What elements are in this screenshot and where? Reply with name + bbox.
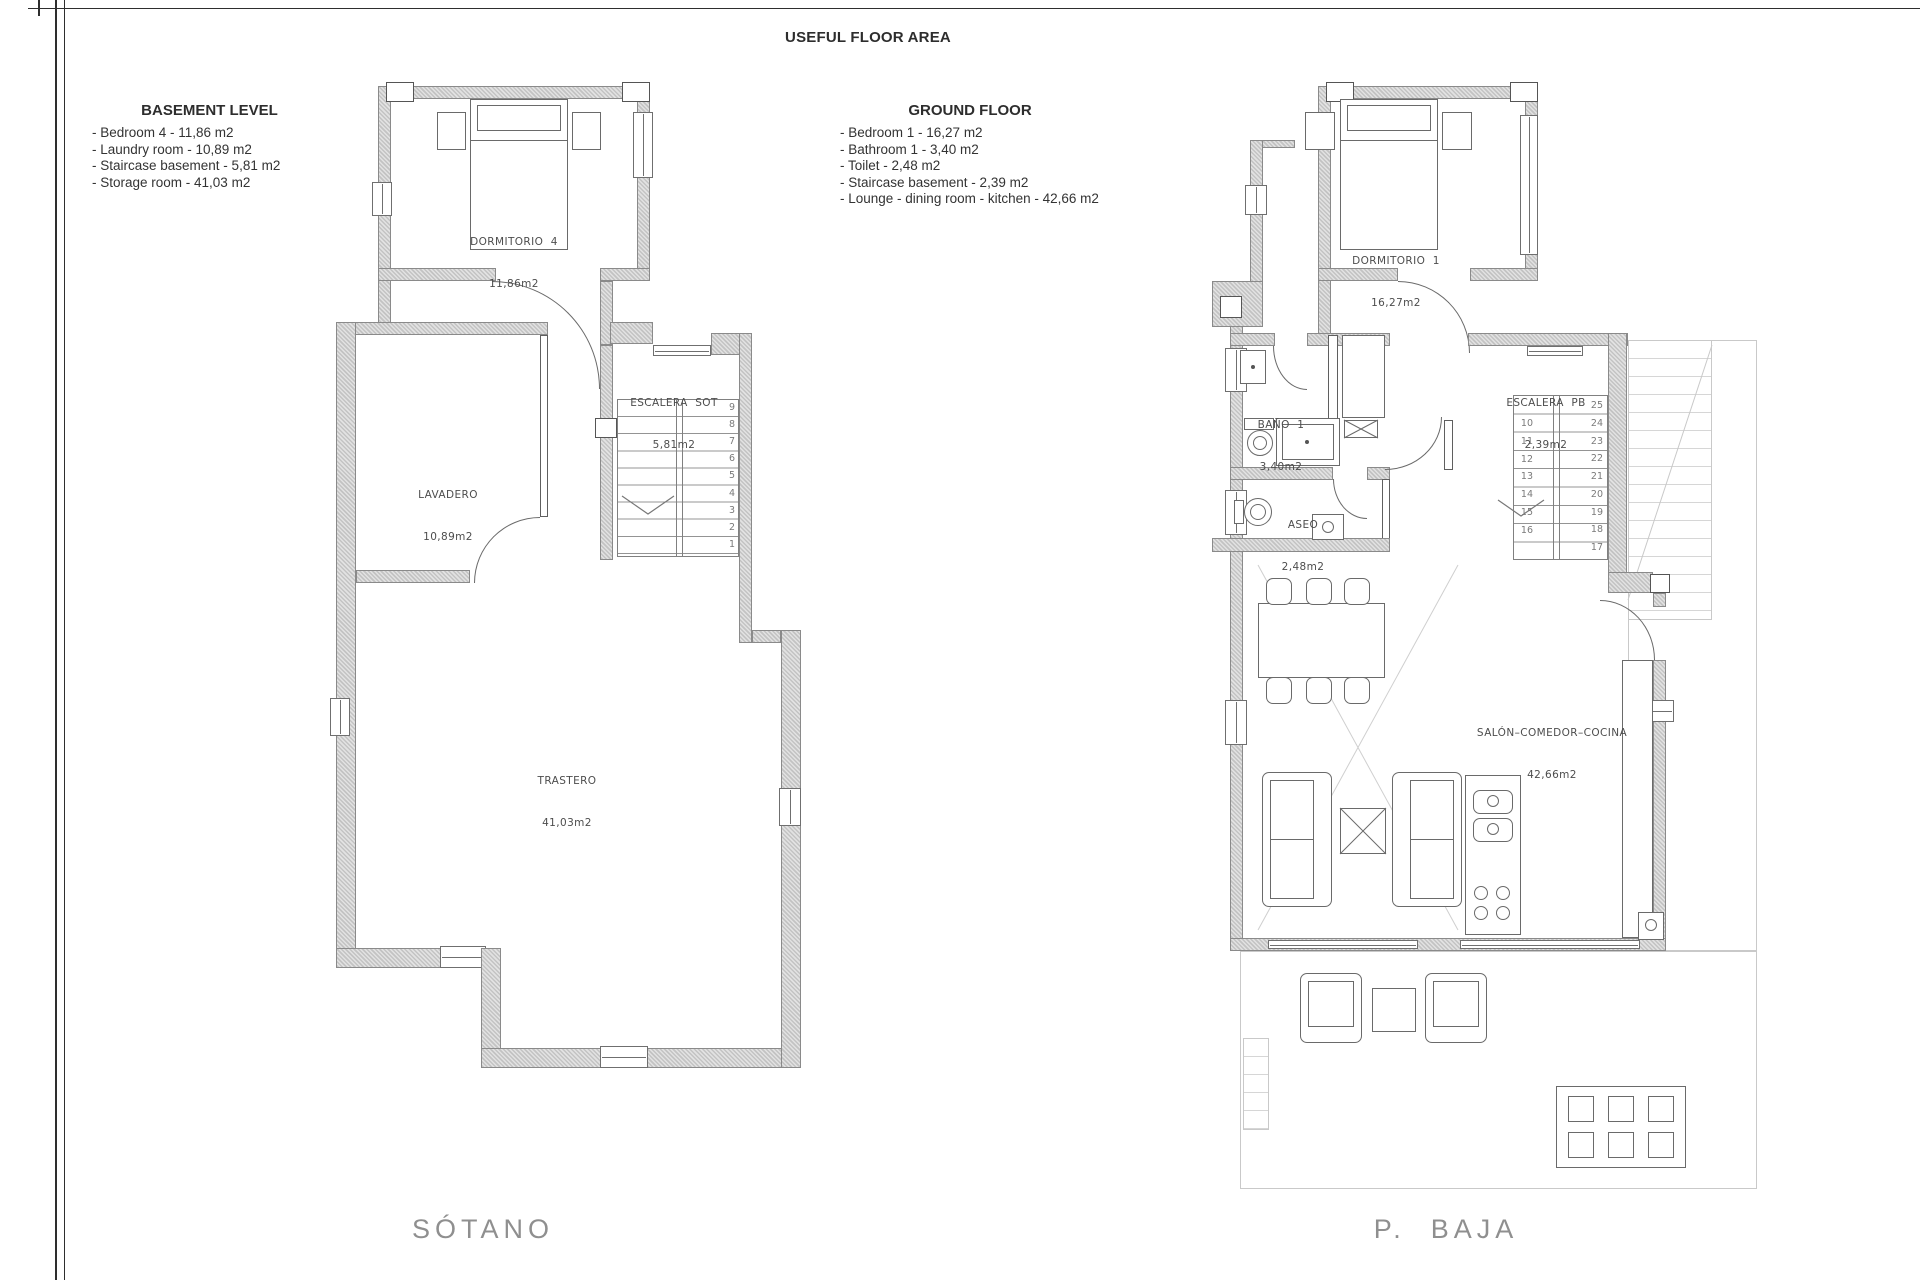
pilaster [386, 82, 414, 102]
pilaster [1510, 82, 1538, 102]
stair-step-number: 19 [1591, 507, 1603, 518]
door-arc [1333, 479, 1367, 519]
wall [600, 268, 650, 281]
window [372, 182, 392, 216]
wall [1653, 593, 1666, 607]
room-label-escalera-sot: ESCALERA SOT 5,81m2 [630, 368, 718, 480]
sink-tap [1251, 365, 1255, 369]
room-name: BAÑO 1 [1258, 418, 1305, 432]
legend-item: - Toilet - 2,48 m2 [840, 158, 1100, 175]
chair [1344, 677, 1370, 704]
legend-item: - Bedroom 4 - 11,86 m2 [92, 125, 327, 142]
room-name: ESCALERA SOT [630, 396, 718, 410]
nightstand [572, 112, 601, 150]
legend-item: - Staircase basement - 5,81 m2 [92, 158, 327, 175]
room-area: 2,39m2 [1506, 438, 1585, 452]
terrace-seat [1608, 1132, 1634, 1158]
wall [378, 86, 650, 99]
legend-item: - Lounge - dining room - kitchen - 42,66… [840, 191, 1100, 208]
window [633, 112, 653, 178]
legend-item: - Bathroom 1 - 3,40 m2 [840, 142, 1100, 159]
wall [739, 333, 752, 643]
room-name: ASEO [1282, 518, 1325, 532]
cabinet-cross [1344, 420, 1378, 438]
pilaster [1650, 574, 1670, 593]
door-arc [1385, 417, 1442, 470]
room-name: TRASTERO [538, 774, 597, 788]
plan-caption-pbaja: P. BAJA [1374, 1214, 1519, 1245]
stair-step-number: 6 [729, 453, 735, 464]
pilaster [622, 82, 650, 102]
stair-step-number: 2 [729, 522, 735, 533]
bed-pillow [477, 105, 561, 131]
legend-ground-heading: GROUND FLOOR [840, 102, 1100, 119]
window [330, 698, 350, 736]
wall [1608, 333, 1627, 593]
stair-step-number: 16 [1521, 525, 1533, 536]
room-label-escalera-pb: ESCALERA PB 2,39m2 [1506, 368, 1585, 480]
window [1225, 700, 1247, 745]
stair-step-number: 4 [729, 488, 735, 499]
room-name: SALÓN–COMEDOR–COCINA [1477, 726, 1627, 740]
wall [1230, 333, 1275, 346]
stair-step-number: 20 [1591, 489, 1603, 500]
room-label-trastero: TRASTERO 41,03m2 [538, 746, 597, 858]
toilet-tank [1234, 500, 1244, 524]
legend-item: - Bedroom 1 - 16,27 m2 [840, 125, 1100, 142]
stair-step-number: 9 [729, 402, 735, 413]
partition-wall [540, 335, 548, 517]
door-arc [474, 517, 540, 583]
room-name: DORMITORIO 4 [470, 235, 558, 249]
cooktop-burner [1496, 886, 1510, 900]
bed-fold-line [1340, 140, 1438, 141]
chair [1266, 677, 1292, 704]
wall [1608, 572, 1653, 593]
kitchen-sink-bowl [1645, 919, 1657, 931]
stair-step-number: 17 [1591, 542, 1603, 553]
legend-item: - Storage room - 41,03 m2 [92, 175, 327, 192]
stair-step-number: 23 [1591, 436, 1603, 447]
room-area: 16,27m2 [1352, 296, 1440, 310]
chair [1306, 677, 1332, 704]
legend-basement-heading: BASEMENT LEVEL [92, 102, 327, 119]
wall [781, 630, 801, 1068]
wall [1470, 268, 1538, 281]
room-label-dormitorio4: DORMITORIO 4 11,86m2 [470, 207, 558, 319]
window [600, 1046, 648, 1068]
room-label-bano: BAÑO 1 3,40m2 [1258, 390, 1305, 502]
terrace-armchair-seat [1433, 981, 1479, 1027]
drawing-sheet: USEFUL FLOOR AREA BASEMENT LEVEL - Bedro… [0, 0, 1920, 1280]
page-title: USEFUL FLOOR AREA [785, 29, 951, 46]
stair-step-number: 8 [729, 419, 735, 430]
window [1245, 185, 1267, 215]
stair-step-number: 22 [1591, 453, 1603, 464]
cooktop-burner [1474, 886, 1488, 900]
sliding-window [1268, 940, 1418, 949]
room-area: 11,86m2 [470, 277, 558, 291]
room-area: 3,40m2 [1258, 460, 1305, 474]
pilaster [595, 418, 617, 438]
stair-direction-arrow [620, 494, 676, 518]
sofa-cushion-line [1410, 839, 1454, 840]
sheet-corner-tick [38, 0, 40, 16]
room-label-salon: SALÓN–COMEDOR–COCINA 42,66m2 [1477, 698, 1627, 810]
legend-item: - Staircase basement - 2,39 m2 [840, 175, 1100, 192]
nightstand [1442, 112, 1472, 150]
stair-numbers: 252423222120191817 [1586, 395, 1604, 560]
terrace-seat [1608, 1096, 1634, 1122]
wardrobe [1342, 335, 1385, 418]
window [440, 946, 486, 968]
stair-step-number: 21 [1591, 471, 1603, 482]
door-arc [1273, 346, 1307, 390]
stair-step-number: 3 [729, 505, 735, 516]
terrace-seat [1568, 1132, 1594, 1158]
room-label-dormitorio1: DORMITORIO 1 16,27m2 [1352, 226, 1440, 338]
stair-step-number: 18 [1591, 524, 1603, 535]
room-area: 10,89m2 [418, 530, 478, 544]
toilet-bowl-inner [1250, 504, 1266, 520]
wall [752, 630, 781, 643]
shower-drain [1305, 440, 1309, 444]
room-name: LAVADERO [418, 488, 478, 502]
legend-basement: BASEMENT LEVEL - Bedroom 4 - 11,86 m2 - … [92, 102, 327, 191]
wall [1468, 333, 1628, 346]
terrace-table [1372, 988, 1416, 1032]
terrace-steps [1243, 1038, 1269, 1130]
room-name: DORMITORIO 1 [1352, 254, 1440, 268]
partition-wall [1328, 335, 1338, 420]
legend-ground: GROUND FLOOR - Bedroom 1 - 16,27 m2 - Ba… [840, 102, 1100, 208]
window [1527, 346, 1583, 356]
stair-step-number: 5 [729, 470, 735, 481]
room-area: 41,03m2 [538, 816, 597, 830]
legend-item: - Laundry room - 10,89 m2 [92, 142, 327, 159]
stair-step-number: 1 [729, 539, 735, 550]
room-name: ESCALERA PB [1506, 396, 1585, 410]
room-area: 5,81m2 [630, 438, 718, 452]
nightstand [437, 112, 466, 150]
sheet-border-left [55, 0, 65, 1280]
stair-numbers: 987654321 [718, 399, 736, 559]
dining-table [1258, 603, 1385, 678]
wall [1250, 140, 1263, 294]
partition-wall [1382, 479, 1390, 539]
partition-wall [1444, 420, 1453, 470]
terrace-seat [1568, 1096, 1594, 1122]
niche [1220, 296, 1242, 318]
cooktop-burner [1474, 906, 1488, 920]
room-label-aseo: ASEO 2,48m2 [1282, 490, 1325, 602]
stair-step-number: 24 [1591, 418, 1603, 429]
stair-direction-arrow [1496, 498, 1546, 520]
bed-pillow [1347, 105, 1431, 131]
room-label-lavadero: LAVADERO 10,89m2 [418, 460, 478, 572]
kitchen-sink-drain [1487, 823, 1499, 835]
sliding-window [1460, 940, 1640, 949]
nightstand [1305, 112, 1335, 150]
sheet-border-top [28, 8, 1920, 9]
terrace-armchair-seat [1308, 981, 1354, 1027]
window [779, 788, 801, 826]
chair [1344, 578, 1370, 605]
bed-fold-line [470, 140, 568, 141]
window [653, 345, 711, 356]
sofa-cushion-line [1270, 839, 1314, 840]
terrace-seat [1648, 1096, 1674, 1122]
stair-step-number: 25 [1591, 400, 1603, 411]
stair-step-number: 7 [729, 436, 735, 447]
room-area: 42,66m2 [1477, 768, 1627, 782]
wall [336, 322, 548, 335]
coffee-table-cross [1340, 808, 1386, 854]
cooktop-burner [1496, 906, 1510, 920]
wall [610, 322, 653, 344]
plan-caption-sotano: SÓTANO [412, 1214, 554, 1245]
wall [600, 345, 613, 560]
room-area: 2,48m2 [1282, 560, 1325, 574]
window [1520, 115, 1538, 255]
wall [336, 322, 356, 968]
terrace-seat [1648, 1132, 1674, 1158]
